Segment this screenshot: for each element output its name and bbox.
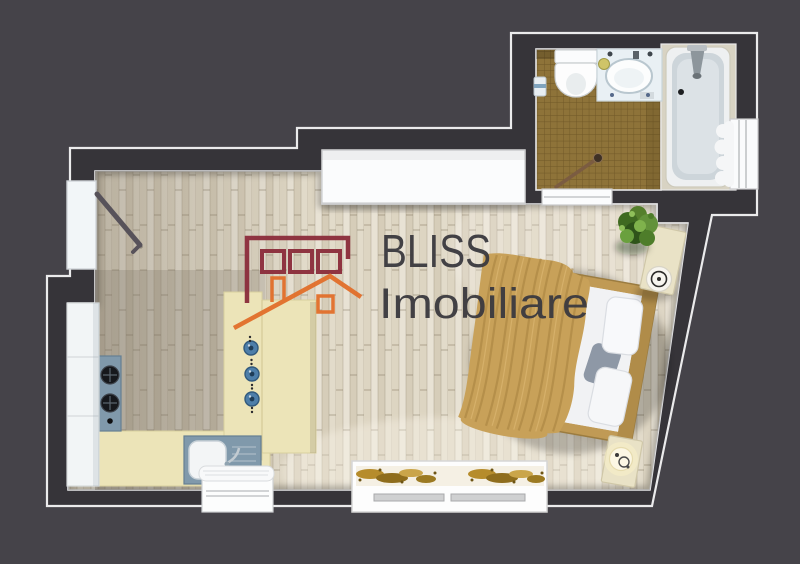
lamp-detail (615, 453, 619, 457)
tub-drain (678, 89, 684, 95)
bin-band (534, 84, 546, 88)
pillow (601, 296, 644, 356)
knob (245, 367, 259, 381)
brand-name: BLISS (381, 225, 491, 277)
knob (245, 392, 259, 406)
bathroom-window-right (715, 119, 759, 189)
knob (244, 341, 258, 355)
bar-counter-edge-shade (310, 302, 316, 453)
vanity-handle (646, 93, 650, 97)
foot-bench-and-window (352, 461, 547, 512)
shower-head-face (693, 73, 702, 79)
toilet-seat (566, 73, 586, 95)
floor-plan-canvas: BLISS Imobiliare (0, 0, 800, 564)
bathroom (534, 44, 758, 205)
toilet (555, 50, 597, 97)
bar-counter (224, 292, 316, 460)
vanity-sink (597, 49, 662, 101)
nightstand-lamp-bottom (604, 442, 638, 476)
rail-knob (594, 154, 603, 163)
towel-stack (199, 466, 274, 481)
soap-dish (599, 59, 610, 70)
brand-subtitle: Imobiliare (379, 280, 589, 328)
towel-cabinet (199, 466, 274, 512)
waste-bin (534, 77, 546, 96)
nightstand-lamp-top (647, 267, 672, 292)
gas-hob (99, 356, 121, 431)
faucet-handle (608, 52, 613, 57)
shower-mount (687, 45, 707, 51)
vanity-faucet (633, 51, 639, 59)
entry-doorway (67, 181, 96, 269)
kitchen-tall-cabinet (67, 303, 99, 486)
hob-knob (107, 418, 113, 424)
lamp-center (657, 277, 661, 281)
basin-inner (614, 68, 644, 88)
window-sash (451, 494, 525, 501)
faucet-handle (648, 52, 653, 57)
cabinet-side-shade (93, 303, 99, 486)
window-sash (374, 494, 444, 501)
floor-plan-render: BLISS Imobiliare (0, 0, 800, 564)
wardrobe-top-shade (322, 150, 525, 160)
vanity-handle (610, 93, 614, 97)
blue-knobs (244, 336, 259, 413)
toilet-tank (555, 50, 597, 63)
lamp-detail (627, 466, 630, 469)
